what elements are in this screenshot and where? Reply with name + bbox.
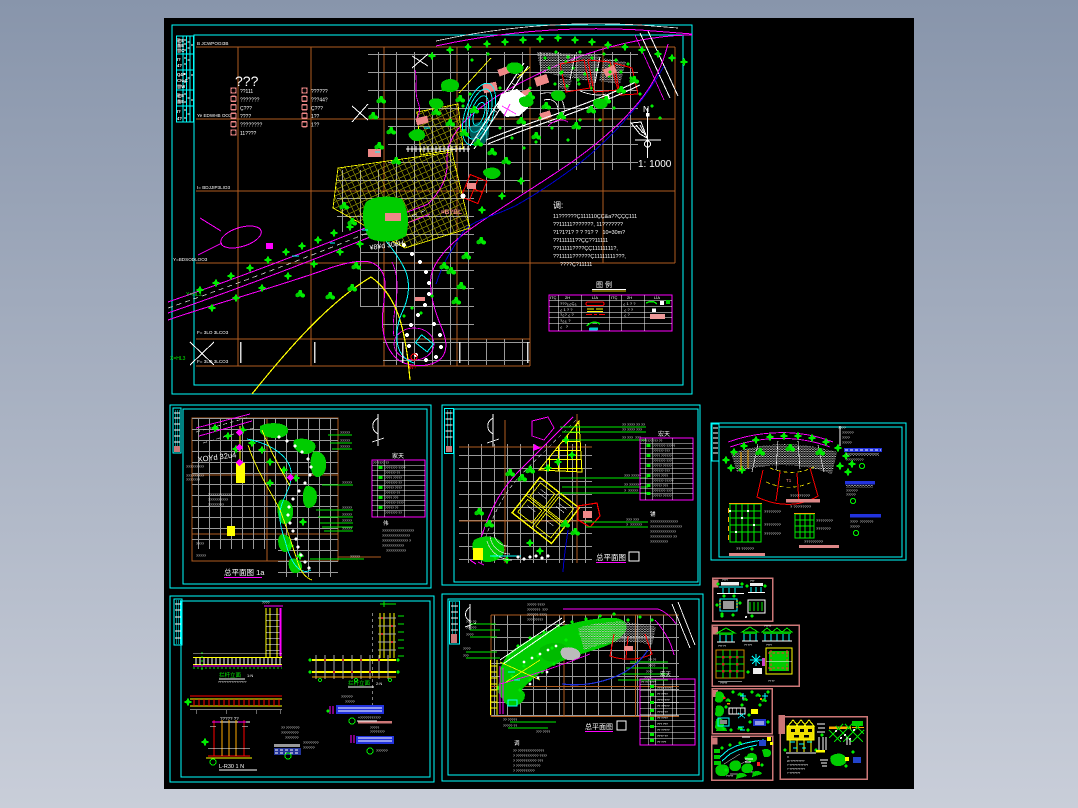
svg-text:?????: ????? bbox=[846, 493, 856, 497]
svg-text:Ç???: Ç??? bbox=[240, 106, 252, 112]
svg-text:???? ??????: ???? ?????? bbox=[653, 454, 672, 458]
svg-text:????? ??: ????? ?? bbox=[503, 724, 517, 728]
svg-text:??????: ?????? bbox=[842, 431, 854, 435]
svg-text:??? ??: ??? ?? bbox=[466, 620, 476, 624]
svg-text:????: ???? bbox=[196, 542, 204, 546]
svg-text:??? ???: ??? ??? bbox=[626, 518, 639, 522]
svg-text:丗W: 丗W bbox=[177, 83, 185, 90]
svg-text:??? ?????: ??? ????? bbox=[527, 618, 543, 622]
svg-text:¤B?BL: ¤B?BL bbox=[441, 209, 462, 216]
svg-text:??? ??: ??? ?? bbox=[718, 644, 726, 648]
svg-text:????: ???? bbox=[766, 643, 772, 647]
svg-text:2:N: 2:N bbox=[376, 681, 382, 686]
svg-text:???: ??? bbox=[463, 654, 469, 658]
svg-text:??????? ???: ??????? ??? bbox=[527, 608, 548, 612]
svg-text:?????: ????? bbox=[342, 527, 352, 531]
svg-text:??????? ??: ??????? ?? bbox=[385, 481, 402, 485]
svg-text:??????????????: ?????????????? bbox=[650, 520, 678, 524]
svg-text:B JCWPOGI3B: B JCWPOGI3B bbox=[197, 41, 228, 46]
svg-text:拦杆立面: 拦杆立面 bbox=[219, 671, 242, 679]
svg-text:?? ?????: ?? ????? bbox=[657, 704, 670, 708]
svg-text:????? ????: ????? ???? bbox=[527, 603, 545, 607]
svg-text:???? ???: ???? ??? bbox=[657, 698, 670, 702]
svg-text:?????: ????? bbox=[850, 525, 860, 529]
svg-text:????: ???? bbox=[648, 664, 656, 668]
svg-text:?????: ????? bbox=[726, 774, 734, 778]
svg-text:Q4P: Q4P bbox=[177, 72, 186, 77]
svg-text:????????????????: ???????????????? bbox=[650, 525, 682, 529]
svg-text:????????: ???????? bbox=[764, 510, 781, 514]
svg-text:???¿¿Ç¿: ???¿¿Ç¿ bbox=[560, 301, 577, 306]
svg-text:??????: ?????? bbox=[376, 749, 388, 753]
svg-text:??11111????ÇÇ11111111?,: ??11111????ÇÇ11111111?, bbox=[553, 246, 618, 252]
svg-text:???? ????: ???? ???? bbox=[653, 474, 668, 478]
svg-text:? ???????: ? ??????? bbox=[787, 771, 801, 775]
svg-text:苗E: 苗E bbox=[177, 98, 184, 105]
svg-text:????????????? ?: ????????????? ? bbox=[382, 539, 411, 543]
svg-text:??? ???: ??? ??? bbox=[657, 722, 668, 726]
svg-text:??????? ????: ??????? ???? bbox=[385, 466, 406, 470]
svg-text:?? ?? ????: ?? ?? ???? bbox=[641, 680, 656, 684]
svg-text:N: N bbox=[643, 104, 649, 114]
svg-text:??????? ???: ??????? ??? bbox=[653, 459, 672, 463]
svg-text:I= BDJJIP3LIO3: I= BDJJIP3LIO3 bbox=[197, 185, 231, 190]
svg-text:LÌA: LÌA bbox=[592, 295, 598, 300]
svg-text:总平面图: 总平面图 bbox=[596, 552, 626, 562]
svg-text:????????????????: ???????????????? bbox=[382, 529, 414, 533]
svg-text:? ??????????: ? ?????????? bbox=[513, 769, 535, 773]
svg-text:丗C: 丗C bbox=[177, 47, 184, 54]
svg-text:?? ??????????????: ?? ?????????????? bbox=[513, 749, 544, 753]
svg-text:????????: ???????? bbox=[240, 123, 262, 129]
svg-text:?????????: ????????? bbox=[846, 458, 864, 462]
svg-text:1??: 1?? bbox=[311, 123, 320, 129]
svg-text:铺: 铺 bbox=[650, 510, 656, 518]
svg-text:??????????: ?????????? bbox=[386, 549, 406, 553]
svg-text:????: ???? bbox=[463, 647, 471, 651]
svg-text:???: ??? bbox=[750, 579, 755, 583]
svg-text:?¿? ¿ ?: ?¿? ¿ ? bbox=[560, 312, 575, 317]
svg-text:T1: T1 bbox=[786, 478, 792, 483]
svg-text:?¿¿ ?: ?¿¿ ? bbox=[560, 318, 571, 323]
svg-text:??? ????: ??? ???? bbox=[536, 730, 550, 734]
svg-text:LÌA: LÌA bbox=[654, 295, 660, 300]
svg-text:?? ??????? ??: ?? ??????? ?? bbox=[641, 439, 662, 443]
svg-text:?????: ????? bbox=[842, 441, 852, 445]
svg-text:??? ?????: ??? ????? bbox=[624, 474, 641, 478]
svg-text:????? ????: ????? ???? bbox=[385, 486, 402, 490]
svg-text:? ??????????? ???: ? ??????????? ??? bbox=[513, 759, 543, 763]
svg-text:? ????????: ? ???????? bbox=[790, 504, 812, 509]
svg-text:? ??????: ? ?????? bbox=[626, 523, 642, 527]
svg-text:???????: ??????? bbox=[240, 97, 260, 103]
svg-text:????: ???? bbox=[262, 601, 270, 605]
svg-text:????: ???? bbox=[722, 578, 728, 582]
svg-text:????: ???? bbox=[842, 436, 850, 440]
svg-text:?? ??????: ?? ?????? bbox=[624, 483, 641, 487]
svg-text:?????? ???: ?????? ??? bbox=[653, 469, 670, 473]
svg-text:??????: ?????? bbox=[311, 89, 328, 95]
svg-text:1??: 1?? bbox=[311, 114, 320, 120]
svg-text:??????? ???: ??????? ??? bbox=[653, 489, 672, 493]
svg-text:????Ç?11111: ????Ç?11111 bbox=[560, 262, 592, 268]
svg-text:2H: 2H bbox=[565, 295, 570, 300]
svg-text:?????: ????? bbox=[342, 513, 352, 517]
svg-text:???? ?????: ???? ????? bbox=[385, 476, 402, 480]
svg-text:???????????: ??????????? bbox=[382, 544, 404, 548]
svg-text:???????: ??????? bbox=[816, 527, 831, 531]
svg-text:????: ???? bbox=[838, 426, 846, 430]
svg-text:¿ ?: ¿ ? bbox=[624, 312, 631, 317]
svg-text:4?: 4? bbox=[177, 116, 182, 121]
svg-text:ITÇ: ITÇ bbox=[611, 295, 618, 300]
svg-text:11??????Ç111110ÇÇ&a??ÇÇÇ111: 11??????Ç111110ÇÇ&a??ÇÇÇ111 bbox=[553, 214, 637, 220]
svg-text:????????: ???????? bbox=[370, 730, 385, 734]
svg-text:????? ??: ????? ?? bbox=[385, 506, 399, 510]
svg-text:?????????: ????????? bbox=[790, 493, 811, 498]
svg-text:1: 1000: 1: 1000 bbox=[638, 159, 672, 170]
svg-text:总平面图 1a: 总平面图 1a bbox=[224, 567, 265, 577]
svg-text:Y=HL3: Y=HL3 bbox=[186, 292, 202, 298]
svg-text:???????: ??????? bbox=[186, 478, 200, 482]
svg-text:?????: ????? bbox=[345, 700, 355, 704]
svg-text:?????? ??: ?????? ?? bbox=[385, 471, 400, 475]
svg-text:?????????: ????????? bbox=[804, 540, 823, 544]
svg-text:宏天: 宏天 bbox=[658, 430, 670, 438]
svg-text:+???????????: +??????????? bbox=[358, 716, 381, 720]
svg-text:??????????: ?????????? bbox=[208, 498, 228, 502]
svg-text:???? ??: ???? ?? bbox=[657, 734, 668, 738]
svg-text:?? ??? ???: ?? ??? ??? bbox=[622, 436, 641, 440]
svg-text:?????????????: ????????????? bbox=[650, 530, 676, 534]
svg-text:????? ???: ????? ??? bbox=[653, 484, 668, 488]
svg-text:?? ???????: ?? ??????? bbox=[281, 726, 300, 730]
svg-text:?????????: ????????? bbox=[650, 540, 668, 544]
svg-text:?? ??: ?? ?? bbox=[648, 658, 656, 662]
svg-text:????? ?????: ????? ????? bbox=[653, 464, 672, 468]
svg-text:?? ????: ?? ???? bbox=[657, 716, 668, 720]
svg-text:?? ???? ??: ?? ???? ?? bbox=[373, 461, 389, 465]
svg-text:家天: 家天 bbox=[392, 452, 404, 460]
svg-text:?????: ????? bbox=[764, 624, 772, 628]
svg-text:????? ?????: ????? ????? bbox=[653, 494, 672, 498]
svg-text:图 例: 图 例 bbox=[596, 280, 612, 289]
svg-text:?????? ????: ?????? ???? bbox=[527, 613, 547, 617]
svg-text:拦杆立面: 拦杆立面 bbox=[348, 679, 371, 687]
svg-text:??????? ?????: ??????? ????? bbox=[653, 444, 675, 448]
svg-text:驻E: 驻E bbox=[177, 92, 184, 99]
svg-text:?????? ??: ?????? ?? bbox=[385, 491, 400, 495]
svg-text:?? ?: ?? ? bbox=[646, 670, 653, 674]
svg-text:?? ?????: ?? ????? bbox=[657, 728, 670, 732]
svg-text:????: ???? bbox=[466, 633, 474, 637]
svg-text:?????: ????? bbox=[196, 554, 206, 558]
svg-text:???????: ??????? bbox=[285, 736, 299, 740]
svg-text:?????: ????? bbox=[342, 481, 352, 485]
svg-text:??????? ??: ??????? ?? bbox=[385, 511, 402, 515]
svg-text:L-R30 1 N: L-R30 1 N bbox=[219, 764, 244, 770]
svg-text:?????????: ????????? bbox=[186, 465, 204, 469]
svg-text:F= 3LO 3LCO3: F= 3LO 3LCO3 bbox=[197, 330, 229, 335]
svg-text:???44?: ???44? bbox=[311, 97, 328, 103]
svg-text:?? ???? ???: ?? ???? ??? bbox=[622, 428, 642, 432]
svg-text:2H: 2H bbox=[627, 295, 632, 300]
svg-text:????????????: ???????????? bbox=[208, 493, 232, 497]
svg-text:???? ???????: ???? ??????? bbox=[850, 520, 873, 524]
svg-text:?? ???: ?? ??? bbox=[657, 740, 667, 744]
svg-text:?????: ????? bbox=[340, 431, 350, 435]
svg-text:?? ???: ?? ??? bbox=[466, 626, 476, 630]
svg-text:11????: 11???? bbox=[240, 131, 257, 137]
svg-text:???? ???: ???? ??? bbox=[385, 496, 399, 500]
svg-text:?????? ???: ?????? ??? bbox=[653, 449, 670, 453]
svg-text:?????: ????? bbox=[350, 555, 360, 559]
svg-text:?????: ????? bbox=[720, 681, 728, 685]
svg-text:伟: 伟 bbox=[383, 519, 389, 527]
svg-text:?? ?????: ?? ????? bbox=[503, 718, 517, 722]
svg-text:?????????????????: ????????????????? bbox=[218, 680, 247, 684]
svg-text:? ?????????????: ? ????????????? bbox=[513, 764, 540, 768]
svg-text:??11111???????, 11???????: ??11111???????, 11??????? bbox=[553, 222, 623, 228]
svg-text:??????: ?????? bbox=[341, 695, 353, 699]
svg-text:调: 调 bbox=[514, 739, 520, 747]
svg-text:ITÇ: ITÇ bbox=[550, 295, 557, 300]
svg-text:Ç???: Ç??? bbox=[311, 106, 323, 112]
svg-text:????????: ???????? bbox=[764, 523, 781, 527]
svg-text:Y=BDSODLOO3: Y=BDSODLOO3 bbox=[173, 257, 208, 262]
svg-text:?? ??????: ?? ?????? bbox=[736, 547, 754, 551]
svg-text:¿ ?: ¿ ? bbox=[560, 324, 569, 329]
svg-text:X=HL3: X=HL3 bbox=[170, 356, 186, 362]
svg-text:?????: ????? bbox=[340, 445, 350, 449]
svg-text:?? ????: ?? ???? bbox=[657, 692, 668, 696]
svg-text:?1?1?1? ? ? ?1? ? 10=30m?: ?1?1?1? ? ? ?1? ? 10=30m? bbox=[553, 230, 625, 236]
svg-text:1:N: 1:N bbox=[247, 673, 253, 678]
svg-text:?? ???: ?? ??? bbox=[744, 643, 752, 647]
svg-text:????????: ???????? bbox=[764, 532, 781, 536]
svg-text:??????: ?????? bbox=[303, 746, 315, 750]
svg-text:??111111??ÇÇ??11111: ??111111??ÇÇ??11111 bbox=[553, 238, 608, 244]
svg-text:Ye EDWHB OO3: Ye EDWHB OO3 bbox=[197, 113, 232, 118]
svg-text:??111: ??111 bbox=[240, 89, 253, 95]
svg-text:I?: I? bbox=[177, 109, 181, 114]
svg-text:???? ?????: ???? ????? bbox=[657, 686, 673, 690]
svg-text:????????: ???????? bbox=[816, 519, 833, 523]
svg-text:?????????: ????????? bbox=[281, 731, 299, 735]
svg-text:??11111??????Ç11111111???,: ??11111??????Ç11111111???, bbox=[553, 254, 626, 260]
svg-text:????: ???? bbox=[240, 114, 251, 120]
svg-text:????????: ???????? bbox=[303, 741, 319, 745]
svg-text:总平面图: 总平面图 bbox=[585, 722, 613, 731]
svg-text:?????: ????? bbox=[342, 519, 352, 523]
svg-text:? ?????: ? ????? bbox=[624, 489, 638, 493]
svg-text:?????? ????: ?????? ???? bbox=[385, 501, 404, 505]
svg-text:C№C: C№C bbox=[177, 78, 188, 83]
svg-text:? ???????????? ????: ? ???????????? ???? bbox=[513, 754, 547, 758]
svg-text:I?: I? bbox=[177, 57, 181, 62]
svg-text:4?: 4? bbox=[177, 63, 182, 68]
svg-text:?????? ?????: ?????? ????? bbox=[653, 479, 674, 483]
svg-text:?????: ????? bbox=[340, 439, 350, 443]
svg-text:?? ???? ?? ??: ?? ???? ?? ?? bbox=[622, 423, 645, 427]
svg-text:调:: 调: bbox=[553, 201, 563, 210]
svg-text:?????: ????? bbox=[342, 506, 352, 510]
svg-text:??????????????: ?????????????? bbox=[382, 534, 410, 538]
svg-text:????????: ???????? bbox=[208, 503, 224, 507]
svg-text:宏天: 宏天 bbox=[660, 670, 672, 678]
svg-text:???: ??? bbox=[235, 73, 259, 89]
svg-text:¿ 1 ? ?: ¿ 1 ? ? bbox=[623, 301, 636, 306]
svg-text:?? ??: ?? ?? bbox=[768, 679, 775, 683]
svg-text:??????????? ??: ??????????? ?? bbox=[650, 535, 677, 539]
svg-text:???? ??: ???? ?? bbox=[657, 710, 668, 714]
svg-text:W?: W? bbox=[409, 365, 417, 371]
